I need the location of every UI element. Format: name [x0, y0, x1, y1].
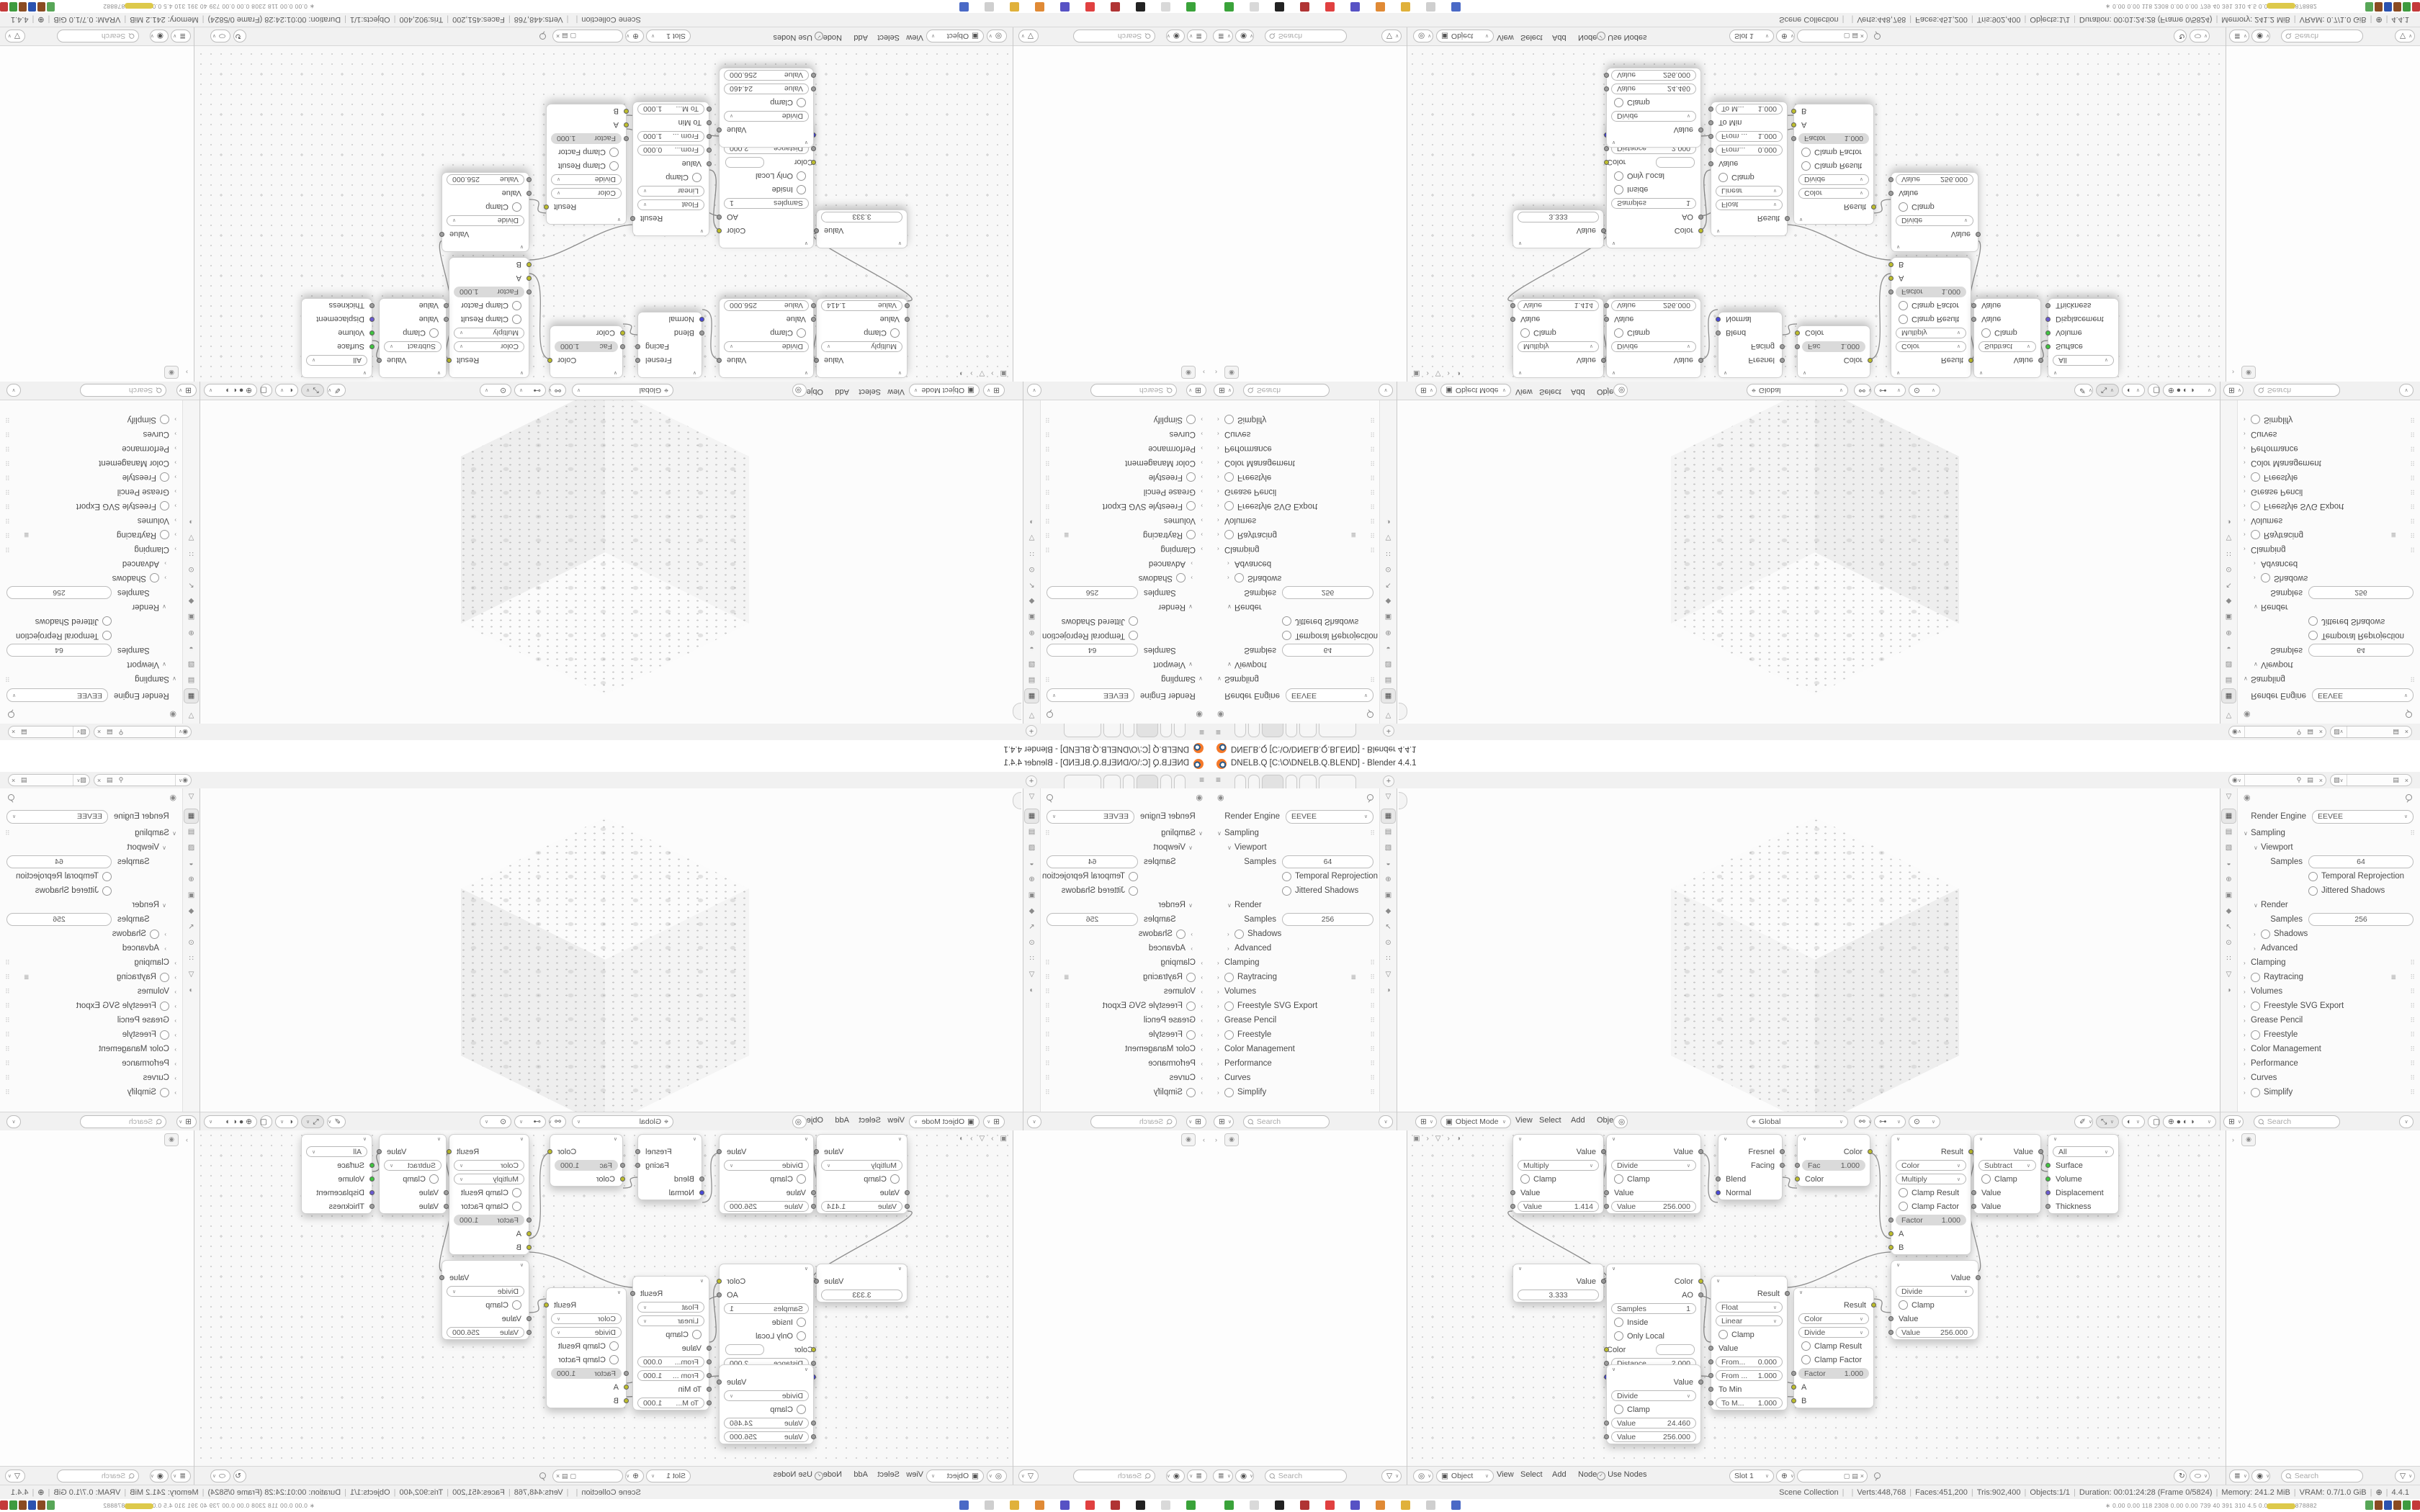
- filter-funnel-icon[interactable]: ▽∨: [1381, 1470, 1402, 1482]
- properties-row-grease-pencil[interactable]: ›Grease Pencil⠿: [2236, 485, 2420, 499]
- collapsed-dropdown[interactable]: ∨: [1027, 1115, 1041, 1128]
- collapse-chevron-icon[interactable]: ›: [186, 1136, 188, 1143]
- node-socket[interactable]: [811, 1434, 816, 1439]
- workspace-tab[interactable]: [1174, 775, 1186, 788]
- mix-multiply-node[interactable]: ∨ResultColor∨Multiply∨Clamp ResultClamp …: [449, 1134, 529, 1255]
- proportional-edit-icon[interactable]: ⊶∨: [1874, 384, 1906, 397]
- node-dropdown[interactable]: All∨: [2053, 355, 2114, 366]
- tray-icon[interactable]: [2403, 1500, 2411, 1510]
- input-value[interactable]: Value: [817, 1186, 907, 1200]
- editor-type-button[interactable]: ◎∨: [1413, 1470, 1433, 1482]
- node-dropdown[interactable]: Float∨: [1716, 199, 1783, 210]
- node-socket[interactable]: [707, 1387, 712, 1392]
- node-socket[interactable]: [811, 317, 816, 322]
- menu-node[interactable]: Node: [1578, 1470, 1597, 1479]
- properties-row-shadows[interactable]: ›Shadows: [0, 927, 184, 941]
- properties-row-temporal-reprojection[interactable]: Temporal Reprojection: [2236, 869, 2420, 883]
- properties-row-temporal-reprojection[interactable]: Temporal Reprojection: [1210, 869, 1381, 883]
- data-tab-icon[interactable]: ▽: [184, 967, 199, 982]
- scene-tab-icon[interactable]: ◒: [1024, 641, 1039, 656]
- taskbar-app-icon[interactable]: [985, 2, 994, 12]
- modifiers-tab-icon[interactable]: ◆: [2221, 904, 2236, 919]
- node-socket[interactable]: [811, 1190, 816, 1195]
- properties-row-grease-pencil[interactable]: ›Grease Pencil⠿: [0, 485, 184, 499]
- output-facing[interactable]: Facing: [638, 340, 702, 354]
- input-value[interactable]: Value: [1513, 1186, 1603, 1200]
- node-socket[interactable]: [2045, 1163, 2051, 1168]
- output-ao[interactable]: AO: [1607, 1288, 1700, 1302]
- node-socket[interactable]: [635, 344, 640, 349]
- output-color[interactable]: Color: [550, 354, 622, 367]
- workspace-tab[interactable]: [1160, 775, 1172, 788]
- node-dropdown[interactable]: All∨: [306, 1146, 367, 1157]
- node-socket[interactable]: [444, 317, 449, 322]
- node-dropdown[interactable]: Divide∨: [447, 215, 524, 226]
- input-value[interactable]: Value: [1513, 312, 1603, 326]
- map-range-node[interactable]: ∨ResultFloat∨Linear∨ClampValueFrom...0.0…: [1711, 102, 1788, 236]
- workspace-tab[interactable]: [1137, 724, 1158, 737]
- node-socket[interactable]: [905, 303, 910, 308]
- node-value-field[interactable]: From ...1.000: [1716, 1370, 1783, 1381]
- properties-row-render[interactable]: ∨Render: [2236, 898, 2420, 912]
- node-socket[interactable]: [1510, 1204, 1515, 1209]
- node-dropdown[interactable]: Multiply∨: [821, 341, 902, 352]
- input-value[interactable]: Value: [720, 312, 813, 326]
- node-socket[interactable]: [1968, 1149, 1973, 1154]
- output-facing[interactable]: Facing: [1718, 340, 1782, 354]
- editor-type-button[interactable]: ◎∨: [987, 1470, 1007, 1482]
- input-value[interactable]: Value: [1607, 1186, 1700, 1200]
- menu-hamburger-icon[interactable]: ≡: [1216, 727, 1221, 737]
- collapse-chevron-icon[interactable]: ›: [1203, 369, 1205, 376]
- display-mode-button[interactable]: ◉∨: [2251, 30, 2270, 42]
- output-ao[interactable]: AO: [1607, 210, 1700, 224]
- value-node[interactable]: ∨Value3.333: [1512, 1264, 1604, 1302]
- filter-funnel-icon[interactable]: ▽∨: [5, 1470, 25, 1482]
- tray-icon[interactable]: [2375, 1500, 2383, 1510]
- input-value[interactable]: Value: [442, 186, 529, 200]
- menu-hamburger-icon[interactable]: ≡: [1199, 727, 1204, 737]
- tray-icon[interactable]: [0, 1500, 8, 1510]
- properties-editor-icon[interactable]: ◉: [169, 710, 176, 719]
- output-value[interactable]: Value: [1607, 1145, 1700, 1158]
- node-socket[interactable]: [369, 317, 375, 322]
- node-dropdown[interactable]: Color∨: [1896, 1160, 1966, 1171]
- editor-type-button[interactable]: ≣∨: [2229, 30, 2249, 42]
- workspace-tab[interactable]: [1160, 724, 1172, 737]
- node-socket[interactable]: [1888, 1231, 1894, 1236]
- browse-material-icon[interactable]: ⊕∨: [1776, 30, 1795, 42]
- node-checkbox-row[interactable]: Clamp: [1891, 1298, 1978, 1312]
- properties-row-curves[interactable]: ›Curves⠿: [0, 427, 184, 441]
- close-icon[interactable]: ×: [9, 726, 18, 737]
- scene-name-field[interactable]: [126, 775, 175, 786]
- input-blend[interactable]: Blend: [1718, 1172, 1782, 1186]
- menu-node[interactable]: Node: [823, 1470, 842, 1479]
- node-socket[interactable]: [707, 107, 712, 112]
- ball-icon[interactable]: ◎: [792, 384, 807, 397]
- output-result[interactable]: Result: [547, 200, 626, 214]
- properties-mini-icon[interactable]: ◉: [164, 366, 179, 379]
- input-surface[interactable]: Surface: [302, 340, 372, 354]
- viewport-3d[interactable]: ⊞∨ ▣ Object Mode∨ ViewSelectAddObject ◎ …: [200, 788, 1023, 1130]
- properties-row-color-management[interactable]: ›Color Management⠿: [2236, 456, 2420, 470]
- copy-icon[interactable]: ▤: [1852, 32, 1858, 40]
- node-value-field[interactable]: From...0.000: [1716, 1356, 1783, 1367]
- material-tab-icon[interactable]: ◑: [184, 514, 199, 529]
- search-input[interactable]: ϘSearch: [1243, 1115, 1330, 1128]
- constraints-tab-icon[interactable]: ↖: [1381, 919, 1396, 935]
- node-socket[interactable]: [905, 1204, 910, 1209]
- viewlayer-tab-icon[interactable]: ▧: [184, 657, 199, 672]
- output-fresnel[interactable]: Fresnel: [1718, 354, 1782, 367]
- xray-icon[interactable]: ▢: [2148, 1115, 2160, 1128]
- workspace-tab[interactable]: [1248, 724, 1260, 737]
- properties-row-volumes[interactable]: ›Volumes⠿: [2236, 513, 2420, 528]
- node-socket[interactable]: [717, 1380, 722, 1385]
- node-socket[interactable]: [620, 1163, 625, 1168]
- node-socket[interactable]: [707, 161, 712, 166]
- node-socket[interactable]: [1604, 1434, 1609, 1439]
- workspace-tab[interactable]: [1123, 775, 1134, 788]
- node-socket[interactable]: [526, 1330, 532, 1335]
- mode-dropdown[interactable]: ▣ Object Mode∨: [909, 384, 980, 397]
- snap-toggle-icon[interactable]: ⚯∨: [549, 384, 566, 397]
- node-socket[interactable]: [699, 1176, 704, 1182]
- node-socket[interactable]: [624, 109, 629, 114]
- node-checkbox-row[interactable]: Clamp: [817, 326, 907, 340]
- properties-row-freestyle[interactable]: ›Freestyle⠿: [1039, 470, 1210, 485]
- filter-funnel-icon[interactable]: ▽: [1381, 708, 1396, 723]
- filter-funnel-icon[interactable]: ▽∨: [1018, 1470, 1039, 1482]
- node-socket[interactable]: [1888, 1330, 1894, 1335]
- ball-icon[interactable]: ◎: [1613, 1115, 1628, 1128]
- pin-icon[interactable]: [8, 794, 14, 801]
- properties-row-clamping[interactable]: ›Clamping⠿: [0, 542, 184, 557]
- close-icon[interactable]: ×: [2316, 775, 2326, 786]
- copy-icon[interactable]: ▤: [2304, 726, 2316, 737]
- node-socket[interactable]: [369, 303, 375, 308]
- properties-row-sampling[interactable]: ∨Sampling⠿: [1039, 826, 1210, 840]
- node-socket[interactable]: [814, 1279, 819, 1284]
- search-input[interactable]: ϘSearch: [2254, 1115, 2340, 1128]
- input-a[interactable]: A: [449, 1227, 529, 1241]
- properties-row-freestyle-svg-export[interactable]: ›Freestyle SVG Export⠿: [1210, 999, 1381, 1013]
- output-value[interactable]: Value: [817, 1145, 907, 1158]
- orientation-dropdown[interactable]: ⌖ Global∨: [572, 384, 673, 397]
- properties-row-volumes[interactable]: ›Volumes⠿: [1210, 513, 1381, 528]
- node-checkbox-row[interactable]: Inside: [720, 1315, 813, 1329]
- taskbar-app-icon[interactable]: [1060, 1500, 1070, 1510]
- workspace-tab[interactable]: [1137, 775, 1158, 788]
- display-mode-button[interactable]: ◉∨: [150, 1470, 169, 1482]
- particles-tab-icon[interactable]: ∷: [1381, 546, 1396, 561]
- node-checkbox-row[interactable]: Clamp Result: [1794, 1339, 1873, 1353]
- search-input[interactable]: ϘSearch: [1243, 384, 1330, 397]
- render-tab-icon[interactable]: ▦: [1381, 809, 1396, 824]
- node-checkbox-row[interactable]: Clamp Factor: [1891, 1200, 1971, 1213]
- properties-row-raytracing[interactable]: ›Raytracing≣⠿: [2236, 528, 2420, 542]
- properties-row-render[interactable]: ∨Render: [1039, 898, 1210, 912]
- properties-row-viewport[interactable]: ∨Viewport: [0, 657, 184, 672]
- input-a[interactable]: A: [547, 118, 626, 132]
- math-subtract-node[interactable]: ∨ValueSubtract∨ClampValueValue: [379, 298, 447, 378]
- output-result[interactable]: Result: [449, 1145, 529, 1158]
- value-field[interactable]: 64: [6, 644, 112, 657]
- output-value[interactable]: Value: [1974, 354, 2040, 367]
- workspace-tab[interactable]: [1064, 775, 1101, 788]
- node-socket[interactable]: [1791, 136, 1796, 141]
- world-tab-icon[interactable]: ⊕: [1024, 872, 1039, 887]
- map-range-node[interactable]: ∨ResultFloat∨Linear∨ClampValueFrom...0.0…: [632, 1276, 709, 1410]
- properties-row-render[interactable]: ∨Render: [1039, 600, 1210, 614]
- properties-row-raytracing[interactable]: ›Raytracing≣⠿: [1210, 528, 1381, 542]
- search-input[interactable]: ϘSearch: [1073, 1470, 1155, 1482]
- mix-multiply-node[interactable]: ∨ResultColor∨Multiply∨Clamp ResultClamp …: [1891, 1134, 1971, 1255]
- menu-select[interactable]: Select: [1520, 1470, 1543, 1479]
- node-socket[interactable]: [526, 191, 532, 196]
- output-result[interactable]: Result: [633, 212, 709, 225]
- render-engine-dropdown[interactable]: EEVEE∨: [6, 689, 108, 703]
- editor-type-button[interactable]: ≣∨: [1213, 30, 1233, 42]
- gizmo-icon[interactable]: ⤡∨: [2096, 384, 2119, 397]
- node-value-field[interactable]: Value1.414: [821, 1201, 902, 1212]
- taskbar-app-icon[interactable]: [1250, 2, 1259, 12]
- node-socket[interactable]: [1510, 317, 1515, 322]
- material-slot-dropdown[interactable]: Slot 1∨: [646, 1470, 691, 1482]
- properties-editor-icon[interactable]: ◉: [1196, 793, 1203, 802]
- viewlayer-name-field[interactable]: [30, 726, 73, 737]
- scene-selector[interactable]: ◉∨ ⚲ ▤ ×: [2228, 774, 2326, 786]
- output-value[interactable]: Value: [817, 224, 907, 238]
- node-socket[interactable]: [526, 1245, 532, 1250]
- node-checkbox-row[interactable]: Clamp: [1974, 326, 2040, 340]
- node-socket[interactable]: [526, 177, 532, 182]
- toolbar-toggle-icon[interactable]: [1013, 792, 1021, 809]
- scene-tab-icon[interactable]: ◒: [2221, 641, 2236, 656]
- physics-tab-icon[interactable]: ⊙: [2221, 562, 2236, 577]
- properties-editor-icon[interactable]: ◉: [2244, 710, 2251, 719]
- node-socket[interactable]: [1795, 330, 1800, 336]
- editor-type-button[interactable]: ≣∨: [1213, 1470, 1233, 1482]
- refresh-icon[interactable]: ↻: [233, 30, 246, 42]
- node-socket[interactable]: [1976, 232, 1981, 237]
- node-checkbox-row[interactable]: Clamp Factor: [449, 1200, 529, 1213]
- input-thickness[interactable]: Thickness: [2048, 1200, 2118, 1213]
- constraints-tab-icon[interactable]: ↖: [1024, 919, 1039, 935]
- math-divide-node-3[interactable]: ∨ValueDivide∨ClampValue24.460Value256.00…: [1606, 1364, 1701, 1444]
- value-field[interactable]: 64: [1047, 644, 1138, 657]
- viewlayer-name-field[interactable]: [30, 775, 73, 786]
- editor-type-button[interactable]: ≣∨: [2229, 1470, 2249, 1482]
- properties-row-performance[interactable]: ›Performance⠿: [2236, 441, 2420, 456]
- node-dropdown[interactable]: Divide∨: [1798, 1327, 1869, 1338]
- taskbar-app-icon[interactable]: [1186, 1500, 1196, 1510]
- node-checkbox-row[interactable]: Clamp Result: [1891, 312, 1971, 326]
- viewlayer-tab-icon[interactable]: ▧: [2221, 840, 2236, 855]
- display-mode-button[interactable]: ◉∨: [1235, 30, 1254, 42]
- scene-name-field[interactable]: [2245, 775, 2294, 786]
- pin-icon[interactable]: [1367, 711, 1373, 718]
- viewport-3d[interactable]: ⊞∨ ▣ Object Mode∨ ViewSelectAddObject ◎ …: [200, 382, 1023, 724]
- node-value-field[interactable]: Fac1.000: [1802, 1160, 1865, 1171]
- annotate-icon[interactable]: ✐∨: [327, 384, 346, 397]
- node-socket[interactable]: [1971, 303, 1976, 308]
- properties-row-sampling[interactable]: ∨Sampling⠿: [2236, 826, 2420, 840]
- viewlayer-selector[interactable]: ▧∨ ▤ ×: [8, 774, 90, 786]
- node-socket[interactable]: [811, 1347, 816, 1352]
- math-divide-node-2[interactable]: ∨ValueDivide∨ClampValueValue256.000: [442, 1260, 529, 1340]
- tray-icon[interactable]: [2365, 2, 2373, 12]
- input-normal[interactable]: Normal: [638, 312, 702, 326]
- object-tab-icon[interactable]: ▣: [1381, 888, 1396, 903]
- search-input[interactable]: ϘSearch: [80, 1115, 166, 1128]
- node-socket[interactable]: [1601, 1279, 1606, 1284]
- input-a[interactable]: A: [1794, 118, 1873, 132]
- properties-row-clamping[interactable]: ›Clamping⠿: [1210, 542, 1381, 557]
- input-color[interactable]: Color: [1798, 1172, 1870, 1186]
- node-socket[interactable]: [526, 1231, 532, 1236]
- node-socket[interactable]: [2045, 1176, 2051, 1182]
- world-tab-icon[interactable]: ⊕: [184, 625, 199, 640]
- node-value-field[interactable]: Factor1.000: [1896, 287, 1966, 297]
- math-multiply-node[interactable]: ∨ValueMultiply∨ClampValueValue1.414: [816, 1134, 907, 1214]
- data-tab-icon[interactable]: ▽: [184, 530, 199, 545]
- material-tab-icon[interactable]: ◑: [1381, 514, 1396, 529]
- search-input[interactable]: ϘSearch: [57, 30, 139, 42]
- toolbar-toggle-icon[interactable]: [1399, 792, 1407, 809]
- filter-funnel-icon[interactable]: ▽: [2221, 789, 2236, 804]
- value-field[interactable]: 64: [1047, 855, 1138, 868]
- menu-add[interactable]: Add: [835, 387, 849, 396]
- node-value-field[interactable]: From...0.000: [1716, 145, 1783, 156]
- node-socket[interactable]: [1780, 1163, 1785, 1168]
- snap-toggle-icon[interactable]: ⚯∨: [549, 1115, 566, 1128]
- properties-row-color-management[interactable]: ›Color Management⠿: [0, 456, 184, 470]
- scene-tab-icon[interactable]: ◒: [1381, 856, 1396, 871]
- display-mode-button[interactable]: ◉∨: [1235, 1470, 1254, 1482]
- output-value[interactable]: Value: [1513, 224, 1603, 238]
- particles-tab-icon[interactable]: ∷: [2221, 951, 2236, 966]
- node-socket[interactable]: [1698, 1279, 1703, 1284]
- unlink-icon[interactable]: ×: [556, 32, 560, 40]
- properties-row-freestyle[interactable]: ›Freestyle⠿: [2236, 1027, 2420, 1042]
- output-result[interactable]: Result: [1891, 354, 1971, 367]
- properties-row-color-management[interactable]: ›Color Management⠿: [1039, 456, 1210, 470]
- properties-row-grease-pencil[interactable]: ›Grease Pencil⠿: [1039, 485, 1210, 499]
- mix-multiply-node[interactable]: ∨ResultColor∨Multiply∨Clamp ResultClamp …: [449, 257, 529, 378]
- mode-dropdown[interactable]: ▣ Object Mode∨: [1440, 1115, 1511, 1128]
- physics-tab-icon[interactable]: ⊙: [1381, 935, 1396, 950]
- material-slot-dropdown[interactable]: Slot 1∨: [1729, 30, 1774, 42]
- taskbar-app-icon[interactable]: [1426, 1500, 1435, 1510]
- node-checkbox-row[interactable]: Clamp Factor: [547, 145, 626, 159]
- node-value-field[interactable]: 3.333: [821, 1290, 902, 1300]
- math-divide-node-2[interactable]: ∨ValueDivide∨ClampValueValue256.000: [442, 172, 529, 252]
- node-socket[interactable]: [1601, 358, 1606, 363]
- pin-icon[interactable]: [1874, 1472, 1881, 1479]
- tray-icon[interactable]: [2384, 1500, 2392, 1510]
- taskbar-app-icon[interactable]: [1376, 1500, 1385, 1510]
- shader-node-editor[interactable]: ▣›▽›◑ ∨ValueMultiply∨ClampValueValue1.41…: [1407, 27, 2226, 382]
- value-field[interactable]: 256: [2308, 913, 2414, 926]
- value-field[interactable]: 256: [2308, 586, 2414, 599]
- output-fresnel[interactable]: Fresnel: [1718, 1145, 1782, 1158]
- workspace-tab[interactable]: [1262, 724, 1283, 737]
- menu-select[interactable]: Select: [877, 1470, 900, 1479]
- ball-icon[interactable]: ◎: [792, 1115, 807, 1128]
- node-socket[interactable]: [814, 1149, 819, 1154]
- node-value-field[interactable]: Factor1.000: [1798, 133, 1869, 144]
- scene-selector[interactable]: ◉∨ ⚲ ▤ ×: [94, 774, 192, 786]
- output-result[interactable]: Result: [1711, 1287, 1787, 1300]
- properties-row-advanced[interactable]: ›Advanced: [1210, 941, 1381, 955]
- node-socket[interactable]: [2045, 303, 2051, 308]
- properties-row-samples[interactable]: Samples64: [0, 643, 184, 657]
- node-socket[interactable]: [1871, 204, 1876, 210]
- node-value-field[interactable]: Value256.000: [1611, 300, 1696, 311]
- node-dropdown[interactable]: Multiply∨: [1518, 1160, 1599, 1171]
- overlays-icon[interactable]: ◐∨: [2122, 1115, 2145, 1128]
- workspace-tab[interactable]: [1299, 775, 1317, 788]
- material-tab-icon[interactable]: ◑: [1381, 983, 1396, 998]
- material-tab-icon[interactable]: ◑: [184, 983, 199, 998]
- node-socket[interactable]: [2045, 1190, 2051, 1195]
- input-volume[interactable]: Volume: [2048, 1172, 2118, 1186]
- properties-row-raytracing[interactable]: ›Raytracing≣⠿: [2236, 970, 2420, 984]
- node-socket[interactable]: [1791, 122, 1796, 127]
- properties-row-performance[interactable]: ›Performance⠿: [0, 1056, 184, 1071]
- output-color[interactable]: Color: [1798, 354, 1870, 367]
- node-socket[interactable]: [1604, 86, 1609, 91]
- input-surface[interactable]: Surface: [302, 1158, 372, 1172]
- viewlayer-selector[interactable]: ▧∨ ▤ ×: [8, 726, 90, 738]
- pin-icon[interactable]: [2406, 711, 2412, 718]
- node-socket[interactable]: [717, 127, 722, 132]
- editor-type-button[interactable]: ⊞∨: [1415, 1115, 1437, 1128]
- properties-row-freestyle[interactable]: ›Freestyle⠿: [0, 1027, 184, 1042]
- properties-row-freestyle[interactable]: ›Freestyle⠿: [1210, 470, 1381, 485]
- material-slot-dropdown[interactable]: Slot 1∨: [1729, 1470, 1774, 1482]
- input-value[interactable]: Value: [380, 312, 446, 326]
- node-socket[interactable]: [1708, 1359, 1713, 1364]
- node-socket[interactable]: [377, 1149, 382, 1154]
- properties-row-samples[interactable]: Samples256: [1210, 585, 1381, 600]
- render-tab-icon[interactable]: ▦: [1024, 809, 1039, 824]
- material-output-node[interactable]: ∨All∨SurfaceVolumeDisplacementThickness: [2048, 1134, 2119, 1214]
- input-value[interactable]: Value: [1711, 1341, 1787, 1355]
- node-socket[interactable]: [699, 1190, 704, 1195]
- material-output-node[interactable]: ∨All∨SurfaceVolumeDisplacementThickness: [2048, 298, 2119, 378]
- copy-icon[interactable]: ▤: [18, 775, 30, 786]
- node-dropdown[interactable]: Divide∨: [724, 1160, 809, 1171]
- tray-icon[interactable]: [9, 1500, 17, 1510]
- workspace-tab[interactable]: [1299, 724, 1317, 737]
- properties-row-clamping[interactable]: ›Clamping⠿: [1039, 542, 1210, 557]
- filter-funnel-icon[interactable]: ▽∨: [1381, 30, 1402, 42]
- shading-mode-buttons[interactable]: ⊕ ● ◐ ◑∨: [2163, 384, 2216, 397]
- properties-row-simplify[interactable]: ›Simplify⠿: [2236, 413, 2420, 427]
- properties-row-sampling[interactable]: ∨Sampling⠿: [2236, 672, 2420, 686]
- node-value-field[interactable]: Factor1.000: [551, 133, 622, 144]
- proportional-edit-icon[interactable]: ⊶∨: [514, 1115, 546, 1128]
- node-value-field[interactable]: Value1.414: [821, 300, 902, 311]
- output-tab-icon[interactable]: ▤: [1381, 672, 1396, 688]
- orientation-dropdown[interactable]: ⌖ Global∨: [572, 1115, 673, 1128]
- node-checkbox-row[interactable]: Clamp Result: [1891, 1186, 1971, 1200]
- node-socket[interactable]: [620, 344, 625, 349]
- node-socket[interactable]: [1791, 1371, 1796, 1376]
